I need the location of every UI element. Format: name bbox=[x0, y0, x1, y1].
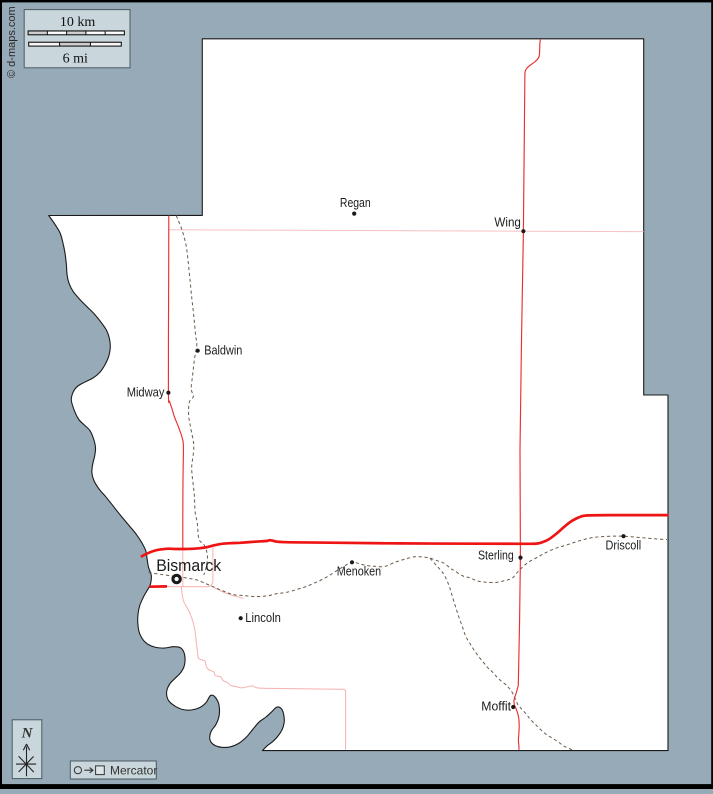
svg-text:Midway: Midway bbox=[127, 386, 165, 400]
svg-text:Baldwin: Baldwin bbox=[204, 344, 242, 358]
svg-text:Driscoll: Driscoll bbox=[606, 539, 642, 553]
svg-text:10 km: 10 km bbox=[60, 15, 96, 30]
svg-text:Wing: Wing bbox=[494, 215, 521, 229]
svg-text:Moffit: Moffit bbox=[481, 700, 511, 714]
svg-text:© d-maps.com: © d-maps.com bbox=[6, 6, 18, 78]
svg-text:Regan: Regan bbox=[340, 196, 371, 210]
svg-text:Lincoln: Lincoln bbox=[245, 611, 281, 625]
svg-text:Sterling: Sterling bbox=[478, 549, 514, 563]
svg-text:Menoken: Menoken bbox=[337, 565, 381, 579]
svg-text:Bismarck: Bismarck bbox=[156, 557, 222, 575]
svg-text:N: N bbox=[21, 726, 34, 742]
svg-text:Mercator: Mercator bbox=[110, 764, 157, 778]
svg-text:6 mi: 6 mi bbox=[63, 51, 88, 66]
